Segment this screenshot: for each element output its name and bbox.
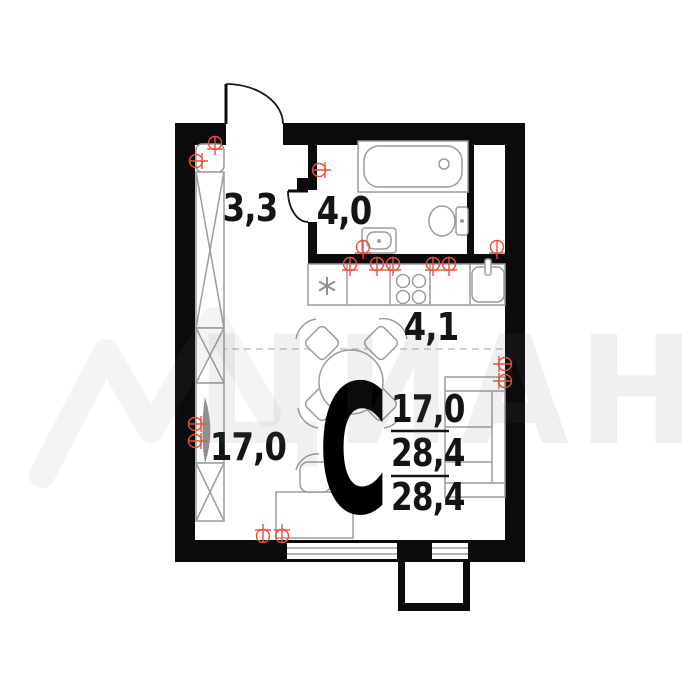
hallway-area-label: 3,3 <box>223 187 278 231</box>
studio-letter: С <box>320 351 387 551</box>
living-area-label: 17,0 <box>210 426 286 470</box>
power-outlet-icon <box>493 356 512 372</box>
bathtub <box>358 141 468 192</box>
power-outlet-icon <box>312 162 331 178</box>
floor-plan-canvas: 3,3 4,0 4,1 17,0 С 17,0 28,4 28,4 ЦИАН <box>0 0 700 700</box>
floor-plan: 3,3 4,0 4,1 17,0 С 17,0 28,4 28,4 <box>0 0 700 700</box>
area-total: 28,4 <box>391 432 465 476</box>
area-living: 17,0 <box>391 388 465 432</box>
power-outlet-icon <box>255 524 271 543</box>
bathroom-area-label: 4,0 <box>317 190 372 234</box>
toilet <box>429 206 468 236</box>
bathroom-door <box>288 191 308 222</box>
kitchen-area-label: 4,1 <box>404 306 459 350</box>
balcony <box>398 562 470 611</box>
balcony-window <box>432 540 468 562</box>
area-total-repeat: 28,4 <box>391 476 465 520</box>
entrance-door <box>226 84 283 124</box>
